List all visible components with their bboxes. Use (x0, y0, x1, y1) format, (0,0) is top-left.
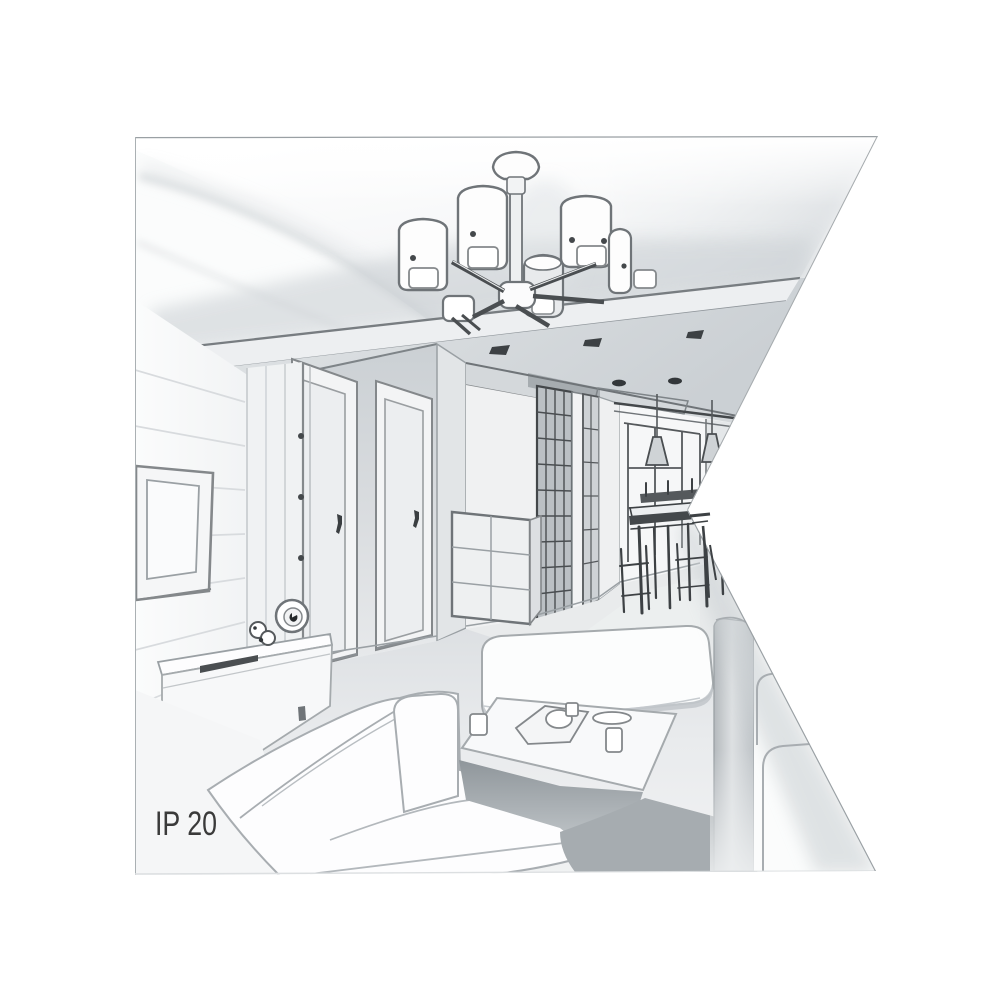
svg-text:IP 20: IP 20 (155, 805, 217, 843)
